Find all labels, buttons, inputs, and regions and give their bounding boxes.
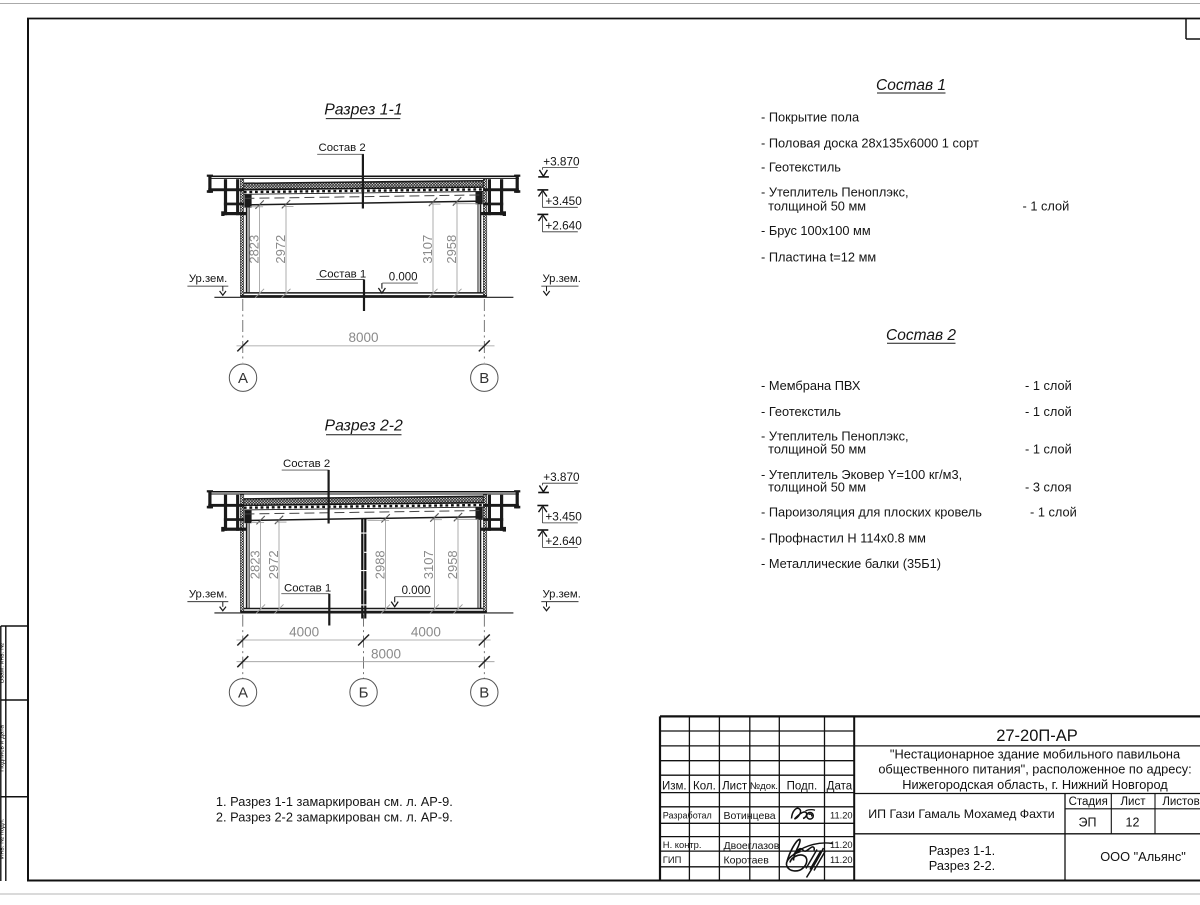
svg-text:- 1 слой: - 1 слой <box>1025 378 1072 393</box>
svg-text:2823: 2823 <box>247 550 262 579</box>
svg-text:Взам. инв. №: Взам. инв. № <box>0 643 6 683</box>
svg-text:А: А <box>238 685 248 702</box>
svg-text:А: А <box>238 370 248 387</box>
svg-text:Состав 1: Состав 1 <box>876 77 946 94</box>
svg-text:общественного питания", распол: общественного питания", расположенное по… <box>878 762 1191 777</box>
svg-text:8000: 8000 <box>348 330 378 345</box>
svg-text:- Пароизоляция для плоских кро: - Пароизоляция для плоских кровель <box>761 505 982 520</box>
svg-text:Н. контр.: Н. контр. <box>663 839 702 850</box>
svg-text:2972: 2972 <box>266 550 281 579</box>
svg-text:Инв. № подл.: Инв. № подл. <box>0 818 6 859</box>
svg-text:Б: Б <box>359 685 369 702</box>
svg-text:+3.870: +3.870 <box>543 470 580 484</box>
svg-text:- Геотекстиль: - Геотекстиль <box>761 160 841 175</box>
svg-text:Стадия: Стадия <box>1069 796 1108 808</box>
svg-text:Вотинцева: Вотинцева <box>724 810 776 822</box>
svg-text:- Профнастил Н 114х0.8 мм: - Профнастил Н 114х0.8 мм <box>761 531 926 546</box>
svg-text:Нижегородская область, г. Нижн: Нижегородская область, г. Нижний Новгоро… <box>902 777 1168 792</box>
svg-text:Лист: Лист <box>722 780 748 792</box>
svg-text:- Утеплитель Пеноплэкс,: - Утеплитель Пеноплэкс, <box>761 185 909 200</box>
svg-text:Разрез 1-1.: Разрез 1-1. <box>929 843 995 858</box>
svg-text:ГИП: ГИП <box>663 854 682 865</box>
svg-text:- 1 слой: - 1 слой <box>1025 404 1072 419</box>
svg-text:Состав 2: Состав 2 <box>283 458 330 470</box>
svg-text:Ур.зем.: Ур.зем. <box>189 588 227 600</box>
svg-text:- 1 слой: - 1 слой <box>1025 442 1072 457</box>
svg-text:0.000: 0.000 <box>389 271 418 283</box>
svg-text:+3.450: +3.450 <box>545 194 582 208</box>
svg-text:- Пластина t=12 мм: - Пластина t=12 мм <box>761 250 876 265</box>
svg-text:11.20: 11.20 <box>830 855 853 865</box>
svg-text:- Мембрана ПВХ: - Мембрана ПВХ <box>761 378 861 393</box>
svg-text:Состав 2: Состав 2 <box>886 327 956 344</box>
svg-text:ИП Гази Гамаль Мохамед Фахти: ИП Гази Гамаль Мохамед Фахти <box>868 807 1055 821</box>
svg-text:- Металлические балки (35Б1): - Металлические балки (35Б1) <box>761 556 941 571</box>
svg-text:Разрез 1-1: Разрез 1-1 <box>324 102 402 119</box>
svg-text:Состав 2: Состав 2 <box>319 142 366 154</box>
svg-text:Состав 1: Состав 1 <box>319 269 366 281</box>
svg-text:1. Разрез 1-1 замаркирован см.: 1. Разрез 1-1 замаркирован см. л. АР-9. <box>216 794 453 809</box>
svg-text:- Брус 100х100 мм: - Брус 100х100 мм <box>761 223 871 238</box>
svg-text:№док.: №док. <box>750 781 778 792</box>
svg-text:2. Разрез 2-2 замаркирован см.: 2. Разрез 2-2 замаркирован см. л. АР-9. <box>216 810 453 825</box>
svg-text:2958: 2958 <box>444 235 459 264</box>
svg-text:- Покрытие пола: - Покрытие пола <box>761 110 860 125</box>
svg-text:- Половая доска 28х135х6000 1: - Половая доска 28х135х6000 1 сорт <box>761 136 979 151</box>
svg-text:4000: 4000 <box>411 625 441 640</box>
svg-text:Ур.зем.: Ур.зем. <box>543 588 581 600</box>
svg-text:2958: 2958 <box>445 550 460 579</box>
svg-text:+2.640: +2.640 <box>545 218 582 232</box>
svg-text:4000: 4000 <box>289 625 319 640</box>
svg-text:- 1 слой: - 1 слой <box>1023 199 1070 214</box>
svg-text:2988: 2988 <box>372 550 387 579</box>
svg-text:11.20: 11.20 <box>830 810 853 820</box>
svg-text:Двоеглазов: Двоеглазов <box>724 840 780 852</box>
svg-text:- 3 слоя: - 3 слоя <box>1025 480 1072 495</box>
svg-text:В: В <box>479 685 489 702</box>
svg-text:Ур.зем.: Ур.зем. <box>543 273 581 285</box>
svg-text:3107: 3107 <box>421 550 436 579</box>
svg-text:Листов: Листов <box>1162 796 1199 808</box>
svg-text:- 1 слой: - 1 слой <box>1030 505 1077 520</box>
svg-text:+2.640: +2.640 <box>545 534 582 548</box>
svg-text:ЭП: ЭП <box>1079 816 1097 830</box>
svg-text:3107: 3107 <box>420 235 435 264</box>
svg-text:толщиной 50 мм: толщиной 50 мм <box>761 480 866 495</box>
svg-text:Изм.: Изм. <box>662 780 687 792</box>
svg-text:- Геотекстиль: - Геотекстиль <box>761 404 841 419</box>
svg-text:+3.870: +3.870 <box>543 154 580 168</box>
svg-text:27-20П-АР: 27-20П-АР <box>996 727 1078 745</box>
svg-text:толщиной 50 мм: толщиной 50 мм <box>761 442 866 457</box>
svg-text:Лист: Лист <box>1121 796 1147 808</box>
svg-text:2972: 2972 <box>273 235 288 264</box>
svg-text:Разработал: Разработал <box>663 810 712 820</box>
svg-text:В: В <box>479 370 489 387</box>
svg-text:Ур.зем.: Ур.зем. <box>189 273 227 285</box>
svg-text:+3.450: +3.450 <box>545 510 582 524</box>
svg-text:Кол.: Кол. <box>693 780 716 792</box>
svg-text:Подпись и дата: Подпись и дата <box>0 725 6 772</box>
svg-text:Коротаев: Коротаев <box>724 854 770 866</box>
svg-text:Дата: Дата <box>827 780 853 792</box>
svg-text:12: 12 <box>1126 816 1140 830</box>
svg-text:Разрез 2-2.: Разрез 2-2. <box>929 858 995 873</box>
svg-text:Разрез 2-2: Разрез 2-2 <box>325 418 403 435</box>
svg-text:11.20: 11.20 <box>830 840 853 850</box>
svg-text:толщиной 50 мм: толщиной 50 мм <box>761 199 866 214</box>
svg-text:"Нестационарное здание мобильн: "Нестационарное здание мобильного павиль… <box>890 746 1181 761</box>
svg-text:ООО "Альянс": ООО "Альянс" <box>1100 849 1186 864</box>
svg-text:8000: 8000 <box>371 646 401 661</box>
svg-text:Состав 1: Состав 1 <box>284 583 331 595</box>
svg-text:2823: 2823 <box>246 235 261 264</box>
svg-text:0.000: 0.000 <box>402 585 431 597</box>
svg-text:Подп.: Подп. <box>787 780 818 792</box>
